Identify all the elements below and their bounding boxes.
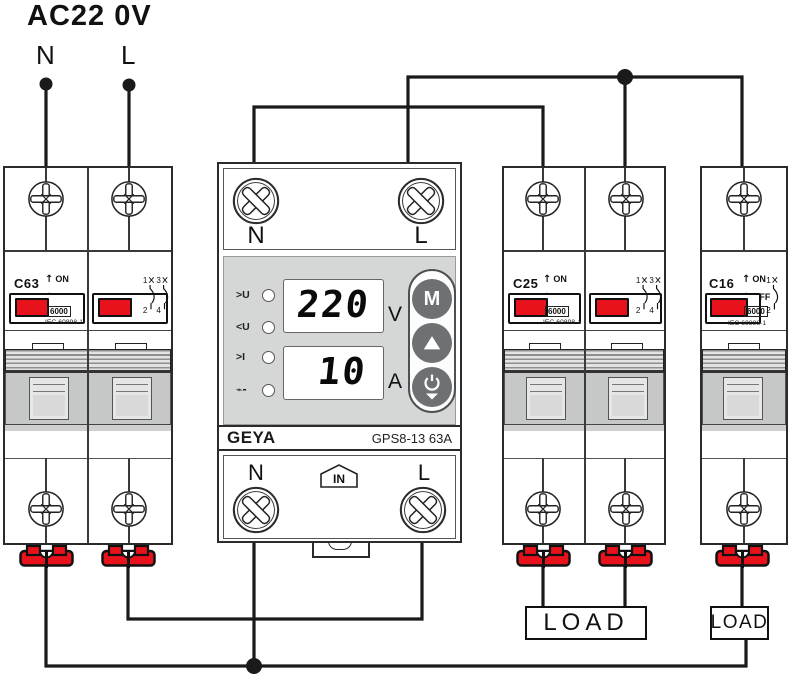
terminal-screw-icon (110, 180, 148, 218)
up-triangle-icon (421, 332, 443, 354)
protector-top-n: N (236, 222, 276, 250)
toggle-handle (608, 377, 648, 420)
led-label-overvoltage: >U (236, 289, 250, 301)
breaking-capacity: 6000 (47, 306, 71, 317)
breaker-midsection (702, 330, 786, 431)
svg-text:IN: IN (333, 472, 345, 486)
terminal-clamp (18, 544, 75, 568)
svg-text:4: 4 (156, 306, 161, 314)
led-label-surge: ⌁- (236, 384, 247, 396)
pole-numbers-icon: 1 2 (766, 274, 781, 314)
breaker-c25: C25 400V~ ↑ON ↓OFF 6000 IEC 60898-1 1 3 … (502, 166, 666, 545)
brand-logo: GEYA (227, 428, 276, 448)
svg-text:3: 3 (649, 276, 654, 285)
load2-label: LOAD (711, 612, 769, 634)
terminal-screw-x-icon (397, 177, 445, 225)
wire-n-out-to-c25 (254, 107, 543, 166)
svg-text:1: 1 (766, 276, 771, 285)
terminal-screw-x-icon (232, 486, 280, 534)
terminal-screw-icon (607, 490, 645, 528)
svg-text:4: 4 (649, 306, 654, 314)
protector-bottom-l: L (404, 460, 444, 486)
terminal-screw-icon (725, 180, 763, 218)
breaker-handle (514, 298, 548, 317)
led-indicator (262, 384, 275, 397)
junction-dot (617, 69, 633, 85)
led-indicator (262, 321, 275, 334)
current-unit: A (388, 370, 402, 394)
pole-divider (584, 168, 586, 543)
svg-text:2: 2 (143, 306, 148, 314)
supply-n-label: N (36, 40, 55, 71)
terminal-screw-icon (27, 490, 65, 528)
current-display: 10 (283, 346, 384, 400)
terminal-screw-icon (110, 490, 148, 528)
terminal-screw-icon (524, 490, 562, 528)
svg-text:1: 1 (143, 276, 148, 285)
standard-label: IEC 60898-1 (45, 319, 83, 326)
junction-dot (123, 79, 136, 92)
power-down-button (412, 367, 452, 407)
up-arrow-icon: ↑ (45, 274, 53, 285)
on-label: ↑ON (45, 274, 69, 285)
junction-dot (40, 78, 53, 91)
breaker-handle (15, 298, 49, 317)
on-label: ↑ON (742, 274, 766, 285)
terminal-clamp (714, 544, 771, 568)
led-label-undervoltage: <U (236, 321, 250, 333)
voltage-protector: N L >U <U >I ⌁- 220 V 10 A M (217, 162, 462, 543)
breaker-handle (710, 298, 748, 317)
up-button (412, 323, 452, 363)
up-arrow-icon: ↑ (543, 274, 551, 285)
breaker-top-terminals (702, 168, 786, 252)
led-indicator (262, 289, 275, 302)
toggle-handle (723, 377, 763, 420)
breaker-handle (595, 298, 629, 317)
din-rail-clip (312, 541, 370, 558)
mode-button: M (412, 279, 452, 319)
terminal-screw-icon (524, 180, 562, 218)
wiring-diagram: AC22 0V N L C63 400V~ ↑ON ↓OFF 6000 IEC … (0, 0, 790, 685)
wire-l-out-to-c16 (408, 77, 742, 166)
standard-label: IEC 60898-1 (728, 320, 766, 327)
breaker-bottom-terminals (702, 458, 786, 543)
terminal-screw-icon (725, 490, 763, 528)
power-icon (420, 372, 444, 402)
breaker-handle (98, 298, 132, 317)
up-arrow-icon: ↑ (742, 274, 750, 285)
svg-text:1: 1 (636, 276, 641, 285)
wire-l-to-protector-in (128, 543, 422, 619)
breaker-faceplate: C16 230V~ ↑ON ↓OFF 6000 IEC 60898-1 1 2 (702, 250, 786, 330)
toggle-handle (526, 377, 566, 420)
load2-box: LOAD (710, 606, 769, 640)
pole-divider (87, 168, 89, 543)
terminal-screw-icon (27, 180, 65, 218)
on-label: ↑ON (543, 274, 567, 285)
breaker-c16: C16 230V~ ↑ON ↓OFF 6000 IEC 60898-1 1 2 (700, 166, 788, 545)
display-panel: >U <U >I ⌁- 220 V 10 A M (223, 256, 456, 425)
voltage-display: 220 (283, 279, 384, 333)
svg-text:2: 2 (766, 306, 771, 314)
device-model: GPS8-13 63A (372, 431, 452, 446)
load1-label: LOAD (543, 609, 628, 637)
svg-text:2: 2 (636, 306, 641, 314)
protector-bottom-n: N (236, 460, 276, 486)
pole-numbers-icon: 1 3 24 (635, 274, 662, 314)
junction-dot (246, 658, 262, 674)
protector-top-l: L (401, 222, 441, 250)
page-title: AC22 0V (27, 0, 152, 33)
led-label-overcurrent: >I (236, 351, 245, 363)
voltage-unit: V (388, 303, 402, 327)
pole-numbers-icon: 1 3 24 (142, 274, 169, 314)
terminal-screw-icon (607, 180, 645, 218)
toggle-handle (112, 377, 152, 420)
vent-stripes (702, 349, 786, 373)
toggle-zone (702, 373, 786, 424)
load1-box: LOAD (525, 606, 647, 640)
svg-text:3: 3 (156, 276, 161, 285)
terminal-screw-x-icon (399, 486, 447, 534)
led-indicator (262, 351, 275, 364)
breaker-model: C16 (709, 276, 734, 291)
breaking-capacity: 6000 (545, 306, 569, 317)
toggle-handle (29, 377, 69, 420)
breaker-model: C25 (513, 276, 538, 291)
breaking-capacity: 6000 (744, 306, 768, 317)
input-house-icon: IN (316, 463, 362, 489)
supply-l-label: L (121, 40, 135, 71)
terminal-screw-x-icon (232, 177, 280, 225)
terminal-clamp (597, 544, 654, 568)
breaker-model: C63 (14, 276, 39, 291)
brand-strip: GEYA GPS8-13 63A (219, 425, 460, 451)
terminal-clamp (100, 544, 157, 568)
breaker-c63: C63 400V~ ↑ON ↓OFF 6000 IEC 60898-1 1 3 … (3, 166, 173, 545)
standard-label: IEC 60898-1 (543, 319, 581, 326)
terminal-clamp (515, 544, 572, 568)
